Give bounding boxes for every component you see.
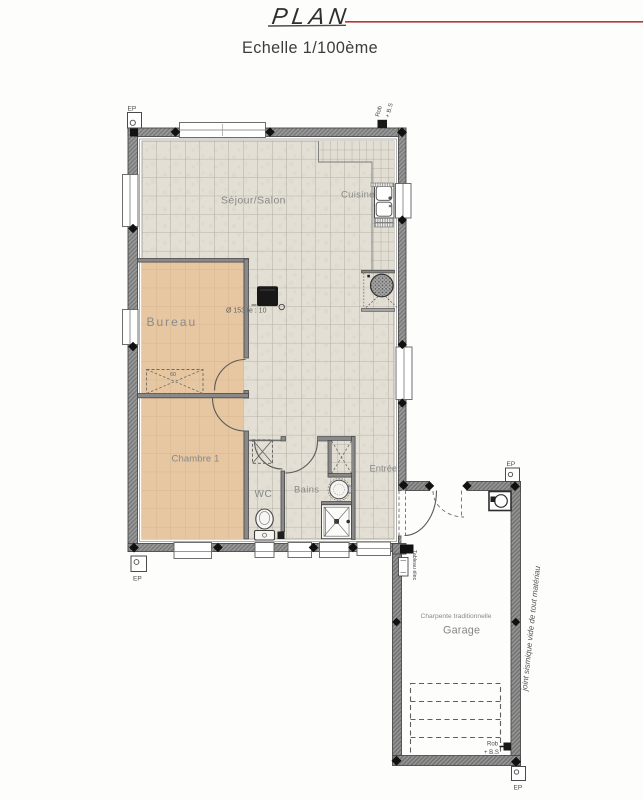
svg-text:Garage: Garage [443, 625, 480, 637]
svg-text:Cuisine: Cuisine [341, 190, 375, 201]
svg-text:Séjour/Salon: Séjour/Salon [221, 195, 286, 207]
svg-text:Echelle 1/100ème: Echelle 1/100ème [242, 39, 378, 57]
svg-text:Tableau élec: Tableau élec [411, 550, 417, 581]
svg-text:Rob: Rob [375, 105, 384, 118]
svg-text:+ B.S: + B.S [484, 750, 499, 756]
svg-text:EP: EP [514, 785, 523, 792]
svg-text:joint sismique vide de tout ma: joint sismique vide de tout matériau [520, 565, 542, 692]
svg-text:EP: EP [128, 106, 137, 113]
svg-text:Bureau: Bureau [147, 315, 198, 329]
svg-text:Bains: Bains [294, 485, 319, 496]
svg-text:EP: EP [507, 461, 516, 468]
svg-text:Chambre 1: Chambre 1 [172, 454, 220, 465]
svg-text:EP: EP [133, 576, 142, 583]
svg-text:+ B.S: + B.S [385, 103, 395, 119]
svg-text:Entrée: Entrée [370, 463, 398, 474]
svg-text:60: 60 [170, 372, 176, 378]
svg-text:Ø 153 te : 10: Ø 153 te : 10 [226, 308, 267, 315]
svg-text:Charpente traditionnelle: Charpente traditionnelle [421, 613, 492, 620]
svg-text:Rob: Rob [487, 742, 499, 748]
svg-text:WC: WC [255, 489, 273, 500]
